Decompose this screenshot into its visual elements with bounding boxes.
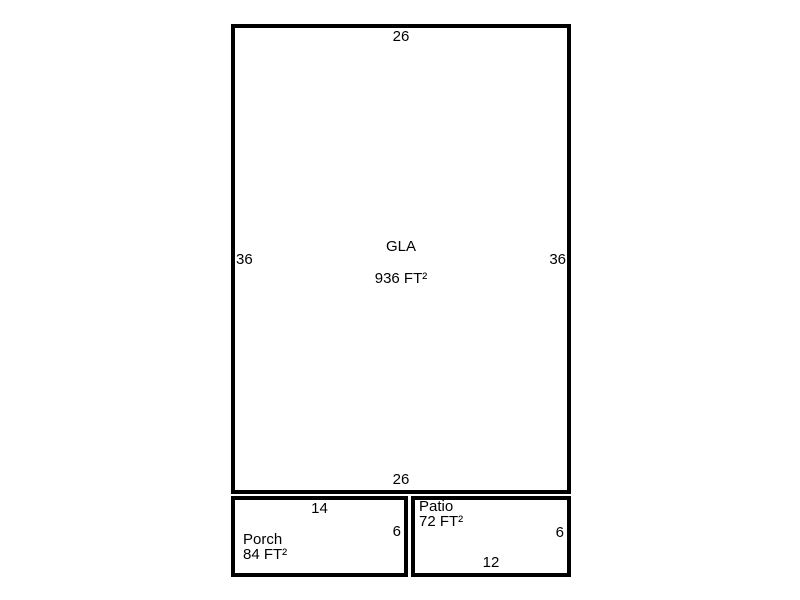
porch-label-block: Porch 84 FT²: [243, 532, 287, 562]
patio-label-block: Patio 72 FT²: [419, 499, 463, 529]
patio-dim-right: 6: [556, 525, 564, 540]
gla-area: 936 FT²: [235, 271, 567, 286]
gla-dim-top: 26: [235, 29, 567, 44]
gla-dim-bottom: 26: [235, 472, 567, 487]
porch-dim-right: 6: [393, 524, 401, 539]
patio-dim-bottom: 12: [415, 555, 567, 570]
patio-label: Patio: [419, 499, 463, 514]
porch-dim-top: 14: [235, 501, 404, 516]
porch-label: Porch: [243, 532, 287, 547]
floorplan-sketch: 26 36 36 26 GLA 936 FT² 14 6 Porch 84 FT…: [0, 0, 800, 600]
porch-area: 84 FT²: [243, 547, 287, 562]
gla-label-block: GLA 936 FT²: [235, 239, 567, 286]
patio-area: 72 FT²: [419, 514, 463, 529]
room-gla: 26 36 36 26 GLA 936 FT²: [231, 24, 571, 494]
room-porch: 14 6 Porch 84 FT²: [231, 496, 408, 577]
gla-label: GLA: [235, 239, 567, 254]
room-patio: Patio 72 FT² 6 12: [411, 496, 571, 577]
